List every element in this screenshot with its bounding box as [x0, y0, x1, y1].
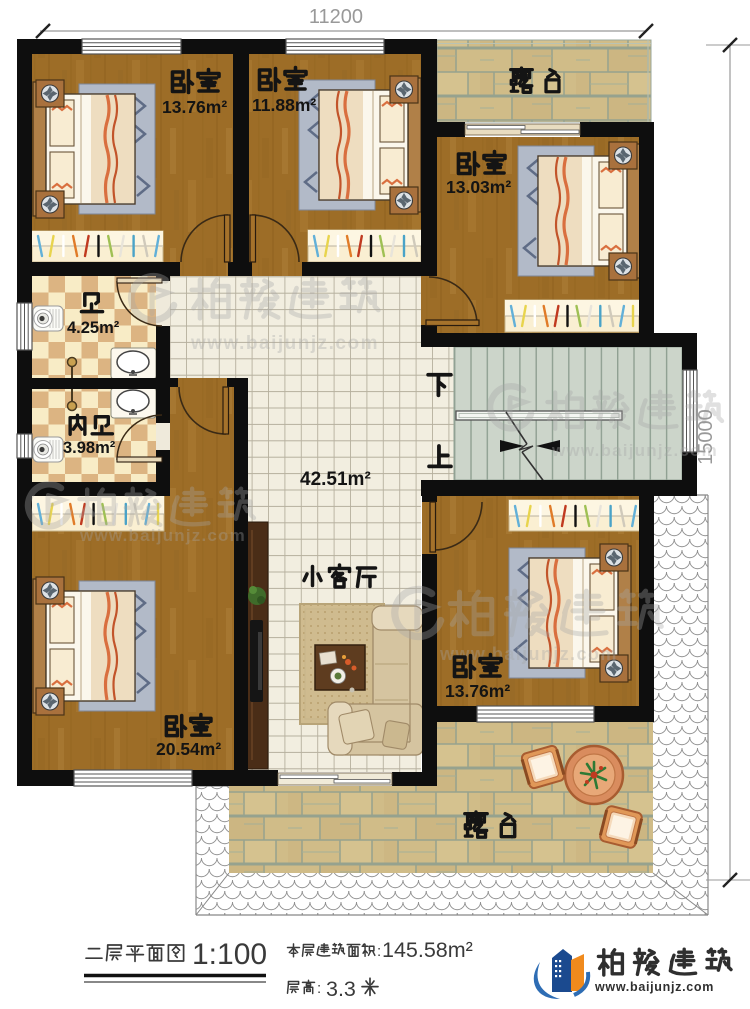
- svg-text:13.76m²: 13.76m²: [445, 681, 510, 701]
- svg-text::: :: [377, 943, 381, 960]
- svg-text:13.76m²: 13.76m²: [162, 97, 227, 117]
- svg-text:3.3: 3.3: [326, 977, 356, 1001]
- svg-text:www.baijunjz.com: www.baijunjz.com: [551, 441, 718, 460]
- svg-text:1:100: 1:100: [192, 938, 267, 971]
- svg-text:11.88m²: 11.88m²: [252, 95, 316, 115]
- svg-text:www.baijunjz.com: www.baijunjz.com: [79, 526, 246, 545]
- svg-text:42.51m²: 42.51m²: [300, 469, 371, 490]
- svg-text:13.03m²: 13.03m²: [446, 177, 511, 197]
- svg-text:15000: 15000: [695, 409, 717, 465]
- svg-text:www.baijunjz.com: www.baijunjz.com: [594, 980, 714, 994]
- svg-text:20.54m²: 20.54m²: [156, 739, 221, 759]
- svg-text::: :: [317, 980, 321, 997]
- svg-text:3.98m²: 3.98m²: [63, 439, 116, 457]
- svg-text:11200: 11200: [309, 6, 363, 28]
- svg-text:145.58m²: 145.58m²: [382, 938, 473, 962]
- svg-text:4.25m²: 4.25m²: [67, 319, 120, 337]
- svg-text:www.baijunjz.com: www.baijunjz.com: [190, 333, 379, 354]
